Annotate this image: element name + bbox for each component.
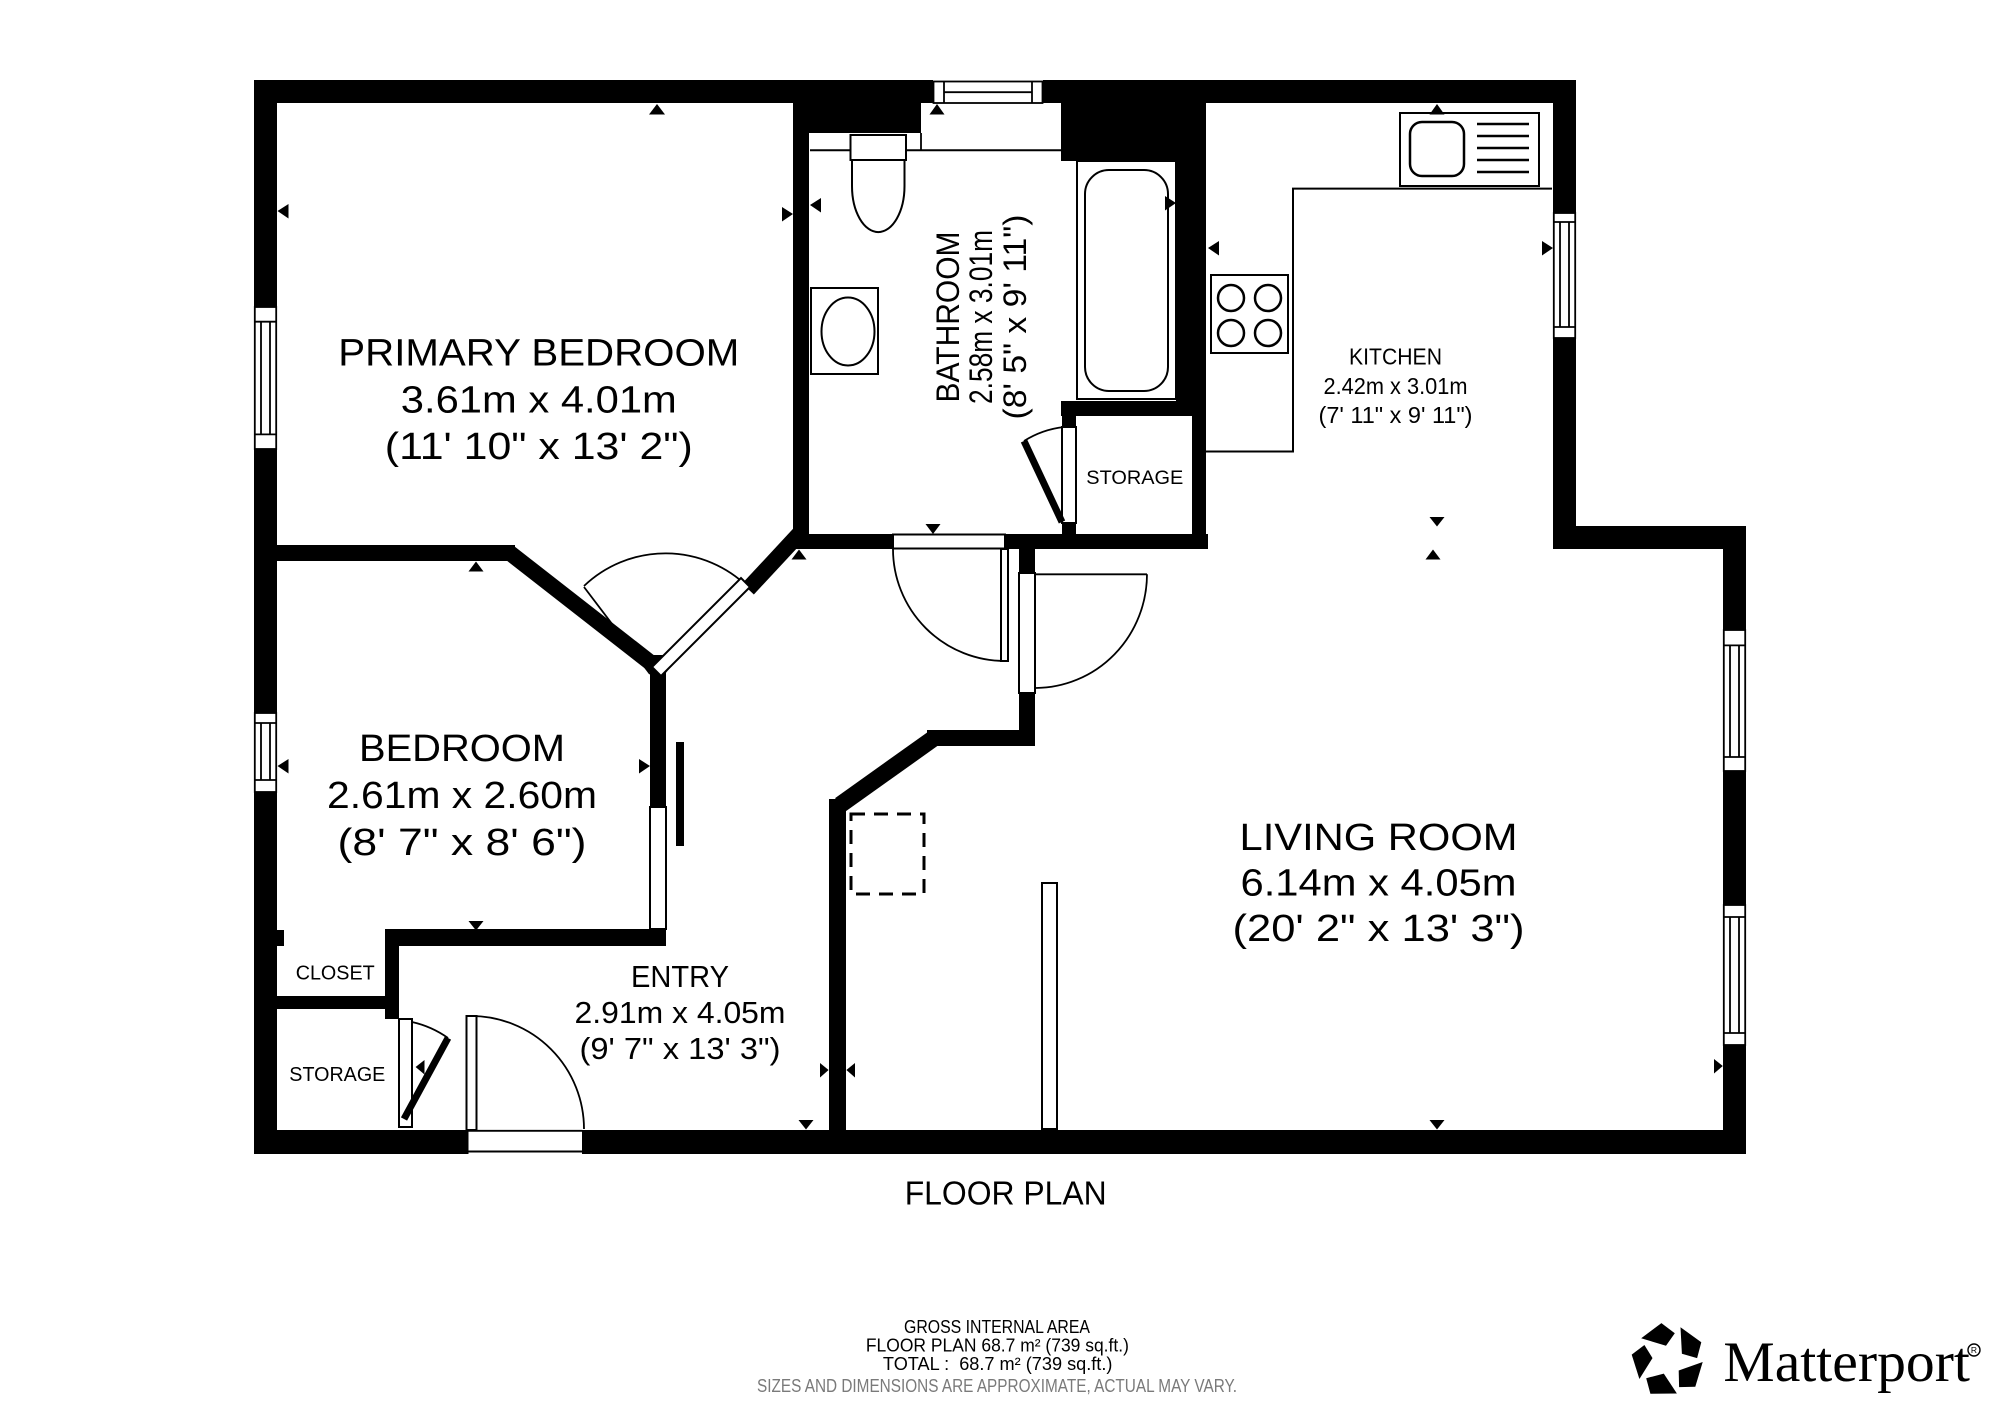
svg-text:(9' 7" x 13' 3"): (9' 7" x 13' 3") [580,1031,781,1066]
svg-text:TOTAL : 68.7 m² (739 sq.ft.): TOTAL : 68.7 m² (739 sq.ft.) [883,1354,1113,1374]
svg-text:(8' 7" x 8' 6"): (8' 7" x 8' 6") [338,822,587,864]
svg-text:LIVING ROOM: LIVING ROOM [1240,817,1518,859]
svg-text:KITCHEN: KITCHEN [1349,344,1442,370]
svg-text:STORAGE: STORAGE [289,1064,385,1086]
svg-text:6.14m x 4.05m: 6.14m x 4.05m [1241,863,1517,905]
svg-text:ENTRY: ENTRY [631,959,729,994]
svg-text:STORAGE: STORAGE [1086,467,1183,489]
svg-text:FLOOR PLAN 68.7 m² (739 sq.ft.: FLOOR PLAN 68.7 m² (739 sq.ft.) [866,1336,1129,1356]
svg-text:FLOOR PLAN: FLOOR PLAN [905,1174,1107,1211]
svg-text:PRIMARY BEDROOM: PRIMARY BEDROOM [338,333,739,375]
svg-text:(8' 5" x 9' 11"): (8' 5" x 9' 11") [997,215,1033,420]
svg-text:R: R [1971,1345,1977,1355]
svg-text:(20' 2" x 13' 3"): (20' 2" x 13' 3") [1233,908,1525,950]
svg-text:2.42m x 3.01m: 2.42m x 3.01m [1324,373,1468,399]
svg-text:CLOSET: CLOSET [296,962,375,984]
svg-text:(7' 11" x 9' 11"): (7' 11" x 9' 11") [1319,402,1473,428]
svg-text:BEDROOM: BEDROOM [359,728,565,770]
svg-text:2.58m x 3.01m: 2.58m x 3.01m [963,230,999,404]
svg-text:3.61m x 4.01m: 3.61m x 4.01m [401,379,677,421]
svg-text:2.91m x 4.05m: 2.91m x 4.05m [575,995,786,1030]
svg-text:2.61m x 2.60m: 2.61m x 2.60m [327,775,597,817]
svg-text:Matterport: Matterport [1723,1331,1970,1394]
svg-text:SIZES AND DIMENSIONS ARE APPRO: SIZES AND DIMENSIONS ARE APPROXIMATE, AC… [757,1376,1237,1396]
svg-text:(11' 10" x 13' 2"): (11' 10" x 13' 2") [385,426,693,468]
svg-text:GROSS INTERNAL AREA: GROSS INTERNAL AREA [904,1317,1090,1337]
svg-text:BATHROOM: BATHROOM [930,232,966,403]
